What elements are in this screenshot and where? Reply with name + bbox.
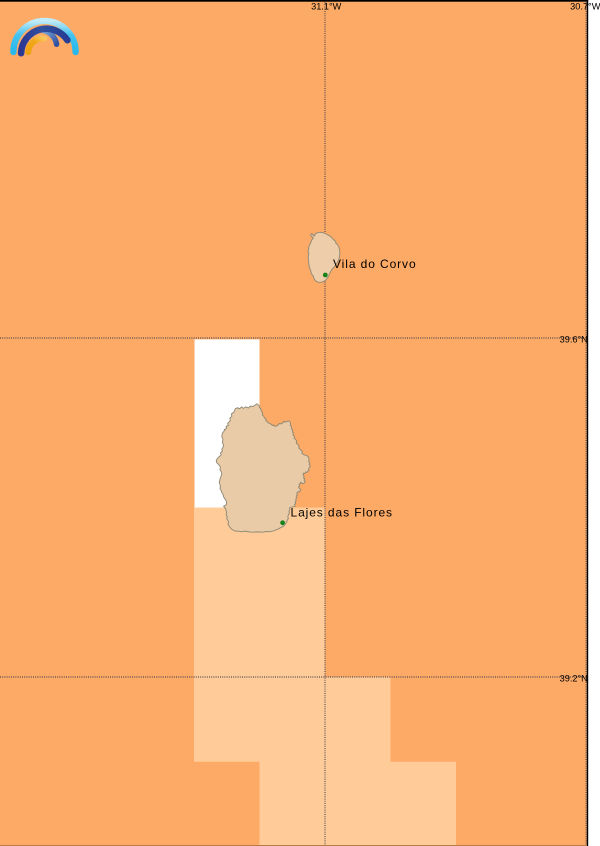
svg-text:Lajes das Flores: Lajes das Flores xyxy=(291,506,393,520)
svg-text:39.2°N: 39.2°N xyxy=(560,673,588,683)
svg-text:39.6°N: 39.6°N xyxy=(560,334,588,344)
svg-text:Vila do Corvo: Vila do Corvo xyxy=(333,257,417,271)
svg-text:31.1°W: 31.1°W xyxy=(311,2,342,12)
svg-text:30.7°W: 30.7°W xyxy=(570,2,600,12)
